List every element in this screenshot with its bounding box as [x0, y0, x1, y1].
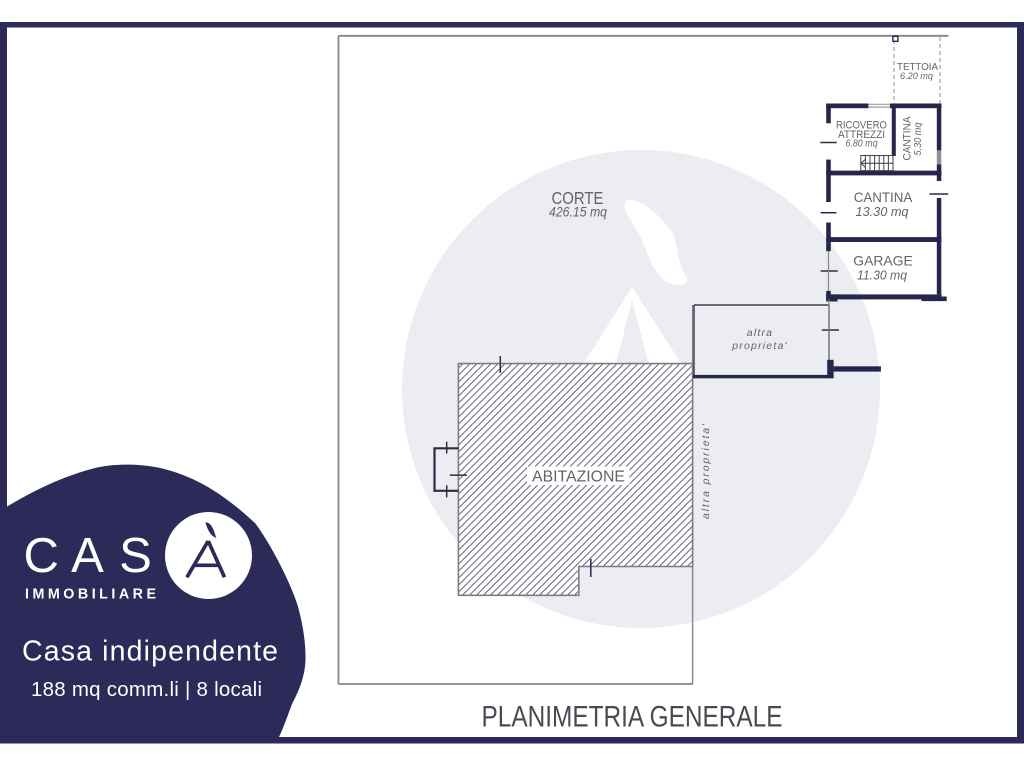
svg-text:PLANIMETRIA GENERALE: PLANIMETRIA GENERALE	[482, 700, 783, 733]
svg-text:CANTINA: CANTINA	[902, 116, 914, 161]
svg-text:6.20 mq: 6.20 mq	[900, 71, 934, 82]
svg-text:11.30 mq: 11.30 mq	[857, 268, 908, 283]
svg-text:5.30 mq: 5.30 mq	[913, 122, 924, 155]
svg-text:6.80 mq: 6.80 mq	[846, 138, 878, 150]
svg-text:proprieta': proprieta'	[731, 340, 787, 352]
svg-text:S: S	[119, 529, 152, 583]
svg-text:altra proprieta': altra proprieta'	[700, 423, 712, 519]
svg-text:C: C	[24, 529, 59, 583]
svg-text:188 mq comm.li | 8 locali: 188 mq comm.li | 8 locali	[31, 678, 262, 701]
svg-text:A: A	[71, 529, 104, 583]
svg-text:13.30 mq: 13.30 mq	[856, 204, 910, 219]
svg-text:CANTINA: CANTINA	[854, 189, 913, 205]
svg-text:ABITAZIONE: ABITAZIONE	[532, 469, 625, 486]
svg-text:GARAGE: GARAGE	[853, 253, 913, 269]
svg-text:altra: altra	[747, 327, 773, 339]
svg-text:426.15 mq: 426.15 mq	[549, 205, 607, 220]
